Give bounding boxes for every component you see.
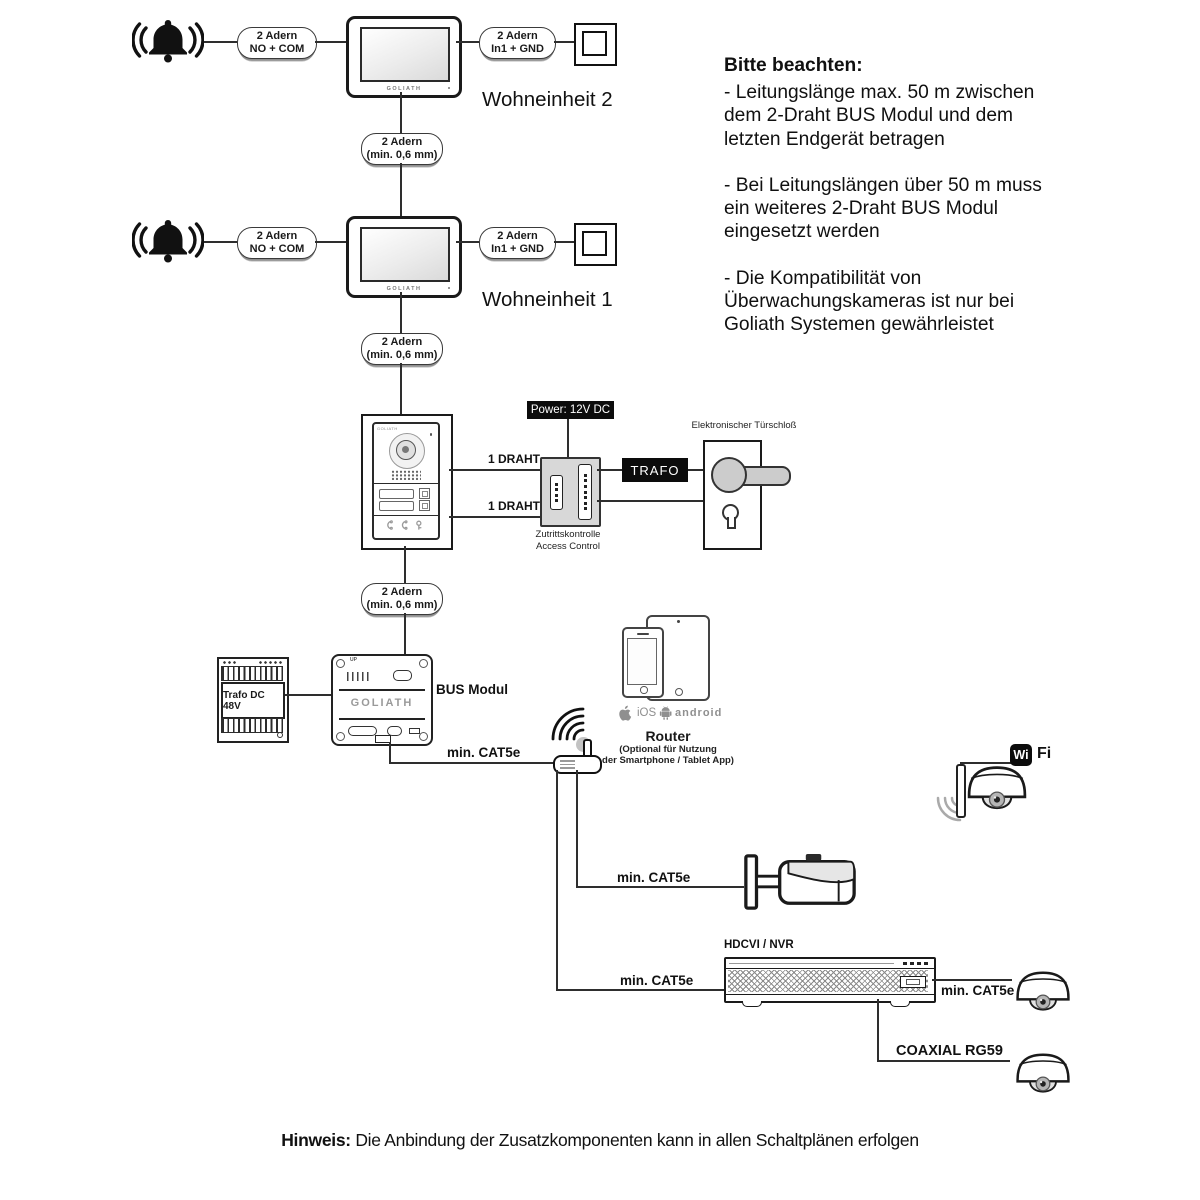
goliath-logo: GOLIATH <box>349 286 459 292</box>
wire <box>877 999 879 1062</box>
connector-port <box>348 726 377 736</box>
smartphone-icon <box>622 627 664 698</box>
wire-1draht <box>449 516 540 518</box>
wire-label-2adern: 2 Adern(min. 0,6 mm) <box>361 333 443 365</box>
door-station: GOLIATH <box>361 414 453 550</box>
doorbell-icon <box>132 213 204 271</box>
wire <box>404 613 406 654</box>
power-led <box>448 87 451 90</box>
door-lock-label: Elektronischer Türschloß <box>684 420 804 431</box>
speaker-grille <box>391 470 421 480</box>
wire-label-in1-gnd: 2 AdernIn1 + GND <box>479 27 556 59</box>
panel-divider <box>339 689 425 691</box>
door-handle-knob <box>711 457 747 493</box>
android-robot-icon <box>657 704 673 721</box>
wire <box>389 742 391 763</box>
wire <box>554 41 574 43</box>
goliath-logo: GOLIATH <box>333 697 431 709</box>
terminal-strip <box>578 464 592 520</box>
camera-lens-icon <box>389 433 425 469</box>
screw-icon <box>336 659 345 668</box>
wire <box>400 363 402 414</box>
draht-label: 1 DRAHT <box>488 499 540 513</box>
coaxial-label: COAXIAL RG59 <box>896 1043 1003 1059</box>
notes-heading: Bitte beachten: <box>724 54 1069 77</box>
screw-icon <box>419 659 428 668</box>
wire-label-in1-gnd: 2 AdernIn1 + GND <box>479 227 556 259</box>
wire <box>400 292 402 333</box>
up-marking: UP <box>350 657 357 663</box>
wire <box>932 979 1012 981</box>
access-control-module <box>540 457 601 527</box>
bus-modul: UP GOLIATH <box>331 654 433 746</box>
nameplate <box>379 501 414 511</box>
router-title: Router <box>600 728 736 744</box>
ios-label: iOS <box>637 707 656 719</box>
wire <box>688 469 703 471</box>
mic-dot <box>430 433 433 436</box>
wifi-dome-camera <box>963 758 1031 814</box>
wire <box>456 41 479 43</box>
call-button <box>419 500 430 511</box>
nvr-top-strip <box>726 959 934 969</box>
access-control-label: Zutrittskontrolle Access Control <box>498 529 638 553</box>
screw-icon <box>277 732 283 738</box>
cat5e-label: min. CAT5e <box>620 973 693 988</box>
wire <box>315 241 346 243</box>
nameplate <box>379 489 414 499</box>
wire <box>554 241 574 243</box>
trafo-box: TRAFO <box>622 458 688 482</box>
router-vent <box>560 764 575 766</box>
monitor-screen <box>360 227 450 282</box>
nvr-mesh-panel <box>728 970 928 992</box>
fi-label: Fi <box>1037 745 1051 763</box>
power-led <box>448 287 451 290</box>
footer-text: Die Anbindung der Zusatzkomponenten kann… <box>351 1130 919 1150</box>
power-label: Power: 12V DC <box>527 401 614 419</box>
note-item: - Bei Leitungslängen über 50 m muss ein … <box>724 174 1069 244</box>
nvr-foot <box>742 1001 762 1007</box>
phone-screen <box>627 638 657 685</box>
wire <box>204 241 237 243</box>
router-vent <box>560 767 575 769</box>
cat5e-label: min. CAT5e <box>447 745 520 760</box>
doorbell-icon <box>132 13 204 71</box>
nvr-power-button <box>900 976 926 988</box>
nvr-recorder <box>724 957 936 1003</box>
wire-1draht <box>449 469 540 471</box>
din-clamp-bottom <box>221 718 283 733</box>
wire <box>597 469 622 471</box>
lens-core <box>402 446 409 453</box>
wire-label-no-com: 2 AdernNO + COM <box>237 227 317 259</box>
android-label: android <box>675 707 722 719</box>
draht-label: 1 DRAHT <box>488 452 540 466</box>
switch-button <box>582 31 607 56</box>
router-subtitle: (Optional für Nutzung der Smartphone / T… <box>583 744 753 767</box>
wire-label-2adern: 2 Adern(min. 0,6 mm) <box>361 583 443 615</box>
nvr-led-indicators <box>903 962 928 966</box>
footer-note: Hinweis: Die Anbindung der Zusatzkompone… <box>0 1130 1200 1151</box>
light-switch-icon <box>574 223 617 266</box>
nvr-seam <box>729 963 894 964</box>
cat5e-label: min. CAT5e <box>941 983 1014 998</box>
trafo48-label: Trafo DC 48V <box>223 690 283 712</box>
light-switch-icon <box>574 23 617 66</box>
indoor-monitor: GOLIATH <box>346 216 462 298</box>
wire <box>576 886 744 888</box>
wifi-waves-icon <box>541 703 587 741</box>
unit-label: Wohneinheit 1 <box>482 288 613 312</box>
nvr-foot <box>890 1001 910 1007</box>
wire <box>877 1060 1010 1062</box>
trafo-label-plate: Trafo DC 48V <box>221 682 285 719</box>
wire <box>404 546 406 583</box>
wire <box>285 694 331 696</box>
phone-home-button <box>640 686 648 694</box>
note-item: - Die Kompatibilität von Überwachungskam… <box>724 267 1069 337</box>
note-item: - Leitungslänge max. 50 m zwischen dem 2… <box>724 81 1069 151</box>
router-vent <box>560 760 575 762</box>
wiring-diagram: 2 AdernNO + COM GOLIATH 2 AdernIn1 + GND… <box>0 0 1200 1200</box>
trafo-dc48v: Trafo DC 48V <box>217 657 289 743</box>
wire <box>556 989 725 991</box>
notes-block: Bitte beachten: - Leitungslänge max. 50 … <box>724 54 1069 359</box>
phone-speaker <box>637 633 649 635</box>
tablet-camera-dot <box>677 620 680 623</box>
terminal-dots <box>258 660 282 665</box>
screw-icon <box>419 732 428 741</box>
screw-icon <box>336 732 345 741</box>
wire-label-no-com: 2 AdernNO + COM <box>237 27 317 59</box>
wire <box>597 500 703 502</box>
connector-port <box>393 670 412 681</box>
tablet-home-button <box>675 688 683 696</box>
wire <box>204 41 237 43</box>
wifi-badge: Wi <box>1010 744 1032 766</box>
bullet-camera <box>742 852 858 912</box>
panel-divider <box>339 718 425 720</box>
apple-logo-icon <box>617 704 633 722</box>
dome-camera <box>1012 1046 1074 1097</box>
wire <box>556 770 558 991</box>
wire <box>567 419 569 457</box>
wire <box>456 241 479 243</box>
wire-label-2adern: 2 Adern(min. 0,6 mm) <box>361 133 443 165</box>
terminal-marks <box>347 672 369 681</box>
footer-bold: Hinweis: <box>281 1130 351 1150</box>
wire <box>389 762 554 764</box>
connector-port <box>409 728 420 734</box>
wire <box>576 770 578 888</box>
bus-modul-label: BUS Modul <box>436 682 508 697</box>
nameplate-section <box>374 483 438 516</box>
indoor-monitor: GOLIATH <box>346 16 462 98</box>
nvr-bottom-strip <box>726 994 934 1001</box>
keypad-icons <box>384 519 428 532</box>
wire <box>400 92 402 133</box>
wire <box>315 41 346 43</box>
wire <box>400 163 402 216</box>
unit-label: Wohneinheit 2 <box>482 88 613 112</box>
terminal-strip <box>550 475 563 510</box>
goliath-logo: GOLIATH <box>377 426 398 431</box>
switch-button <box>582 231 607 256</box>
dome-camera <box>1012 964 1074 1015</box>
goliath-logo: GOLIATH <box>349 86 459 92</box>
door-station-panel: GOLIATH <box>372 422 440 540</box>
din-clamp-top <box>221 666 283 681</box>
keyhole-stem <box>727 517 736 529</box>
call-button <box>419 488 430 499</box>
lens-ring <box>396 440 416 460</box>
monitor-screen <box>360 27 450 82</box>
nvr-label: HDCVI / NVR <box>724 939 794 951</box>
cat5e-label: min. CAT5e <box>617 870 690 885</box>
terminal-dots <box>222 660 236 665</box>
